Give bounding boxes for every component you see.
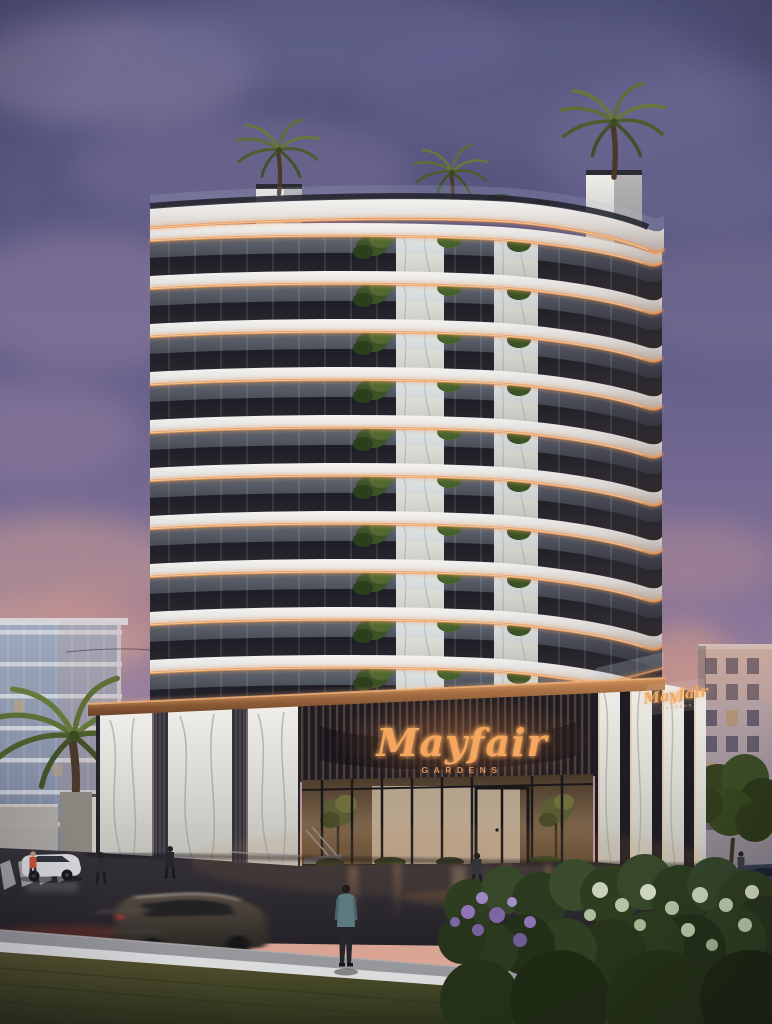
rendering-canvas: Mayfair Mayfair GARDENS (0, 0, 772, 1024)
scene-svg: Mayfair Mayfair GARDENS (0, 0, 772, 1024)
vignette (0, 0, 772, 1024)
